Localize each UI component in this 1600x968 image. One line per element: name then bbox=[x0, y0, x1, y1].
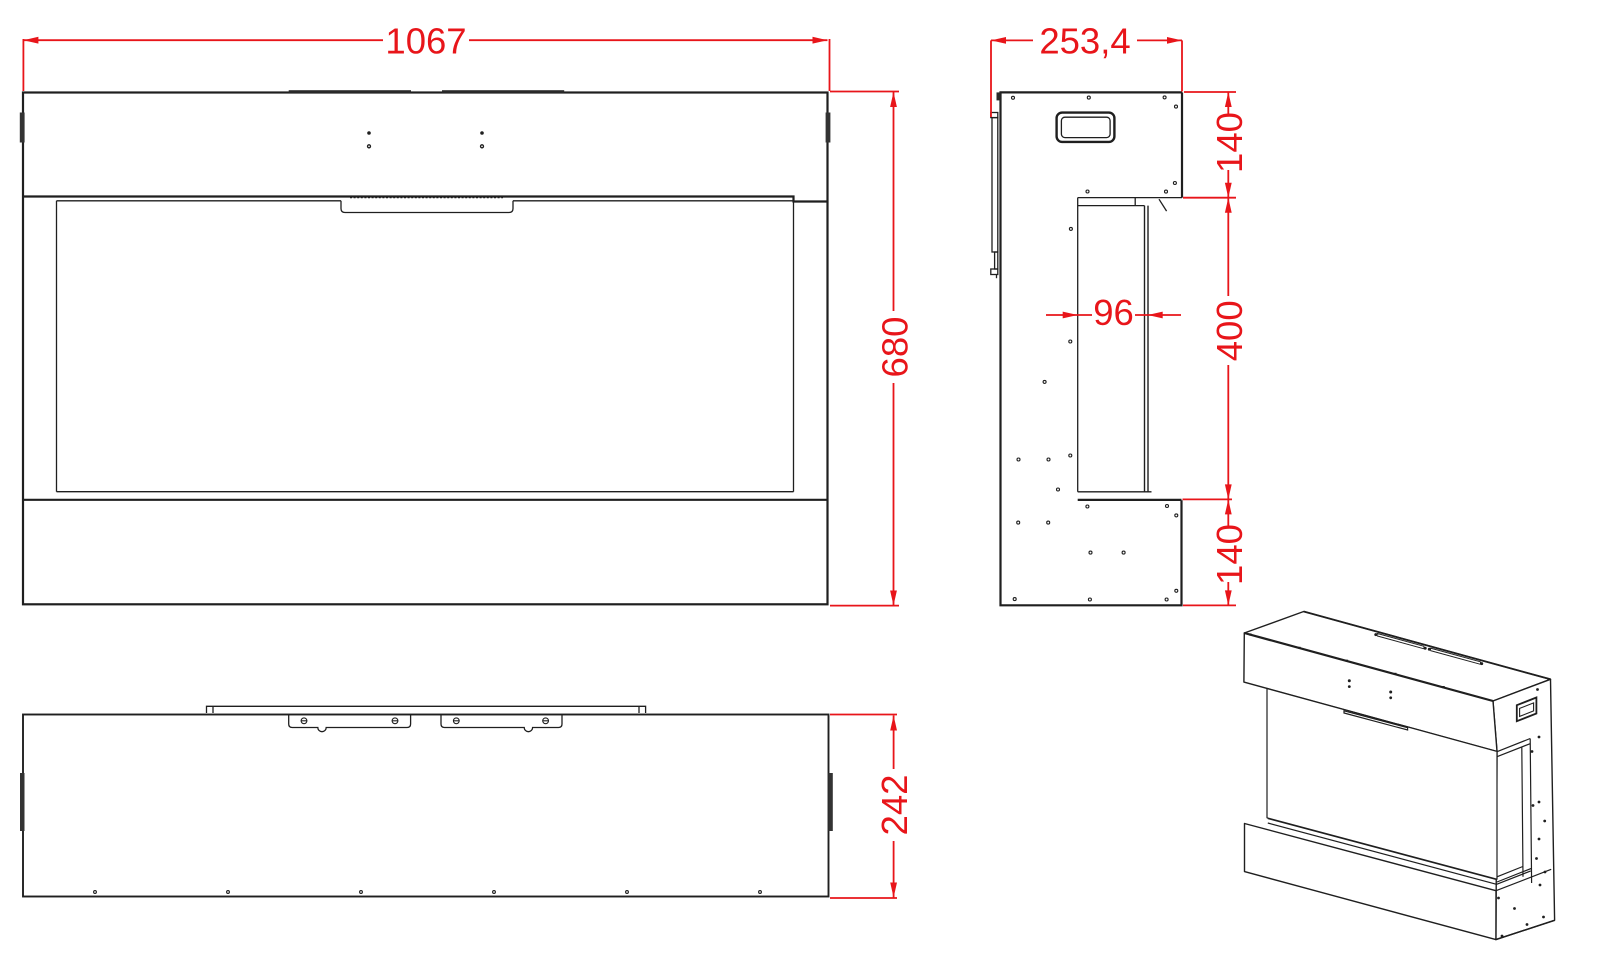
svg-text:242: 242 bbox=[874, 775, 915, 836]
svg-text:400: 400 bbox=[1209, 300, 1250, 361]
svg-text:96: 96 bbox=[1093, 292, 1134, 333]
svg-text:253,4: 253,4 bbox=[1039, 21, 1130, 62]
svg-text:140: 140 bbox=[1209, 112, 1250, 173]
svg-text:1067: 1067 bbox=[385, 21, 466, 62]
svg-text:680: 680 bbox=[875, 317, 916, 378]
svg-text:140: 140 bbox=[1209, 524, 1250, 585]
